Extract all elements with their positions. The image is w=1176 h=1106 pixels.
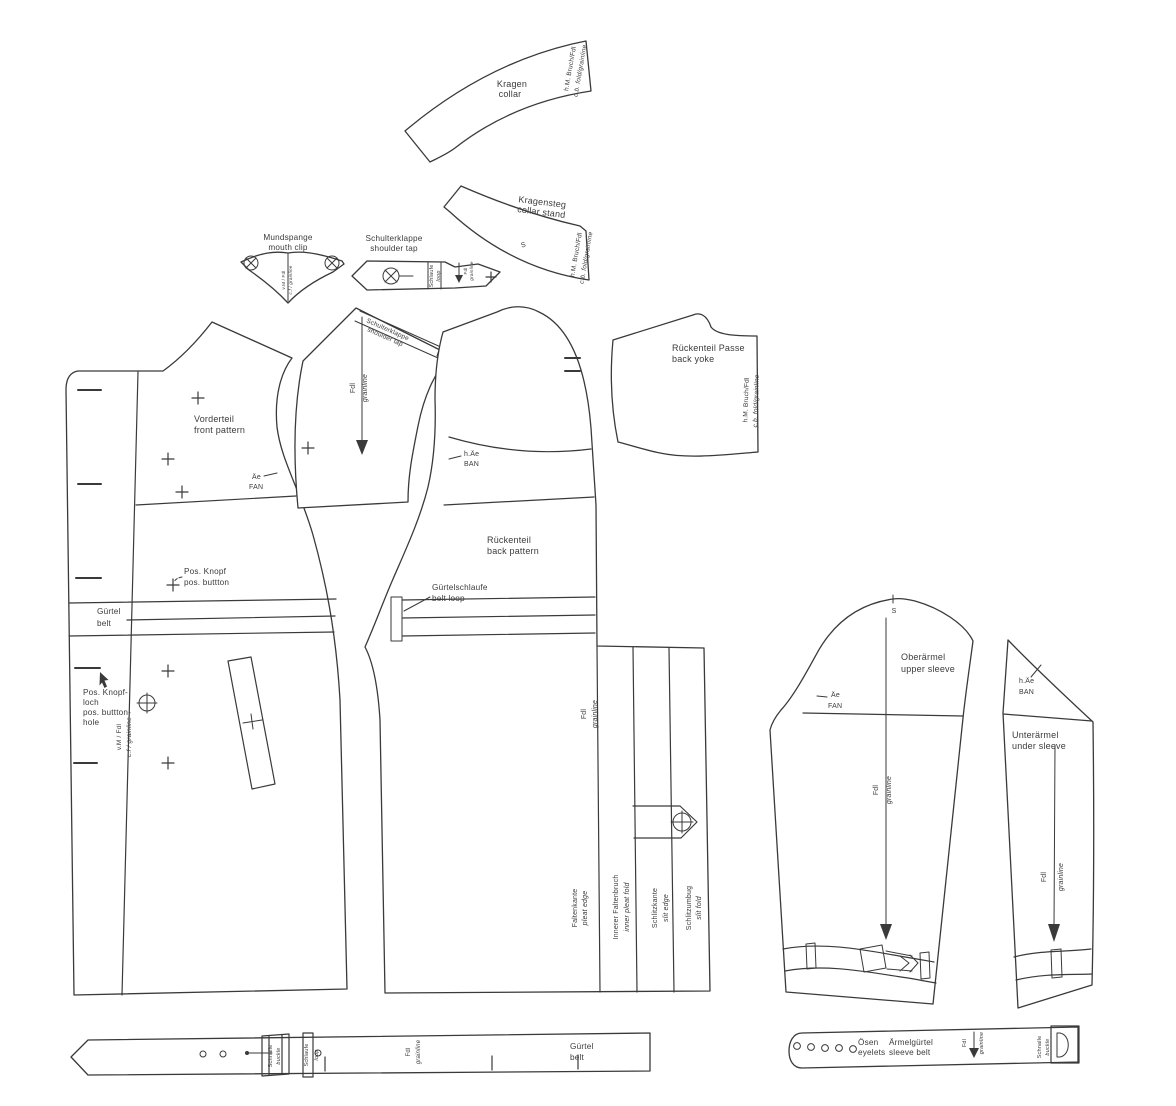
sleeve-belt-label-de: Ärmelgürtel <box>889 1037 933 1047</box>
under-sleeve-piece: Fdl grainline h.Äe BAN Unterärmel under … <box>1003 640 1094 1008</box>
collar-label-en: collar <box>499 89 522 99</box>
back-yoke-fold-grainline-en: c.b. fold/grainline <box>752 374 761 427</box>
waist-belt-buckle-de: Schnalle <box>268 1045 274 1068</box>
belt-loop-label-de: Gürtelschlaufe <box>432 583 488 592</box>
under-sleeve-label-en: under sleeve <box>1012 741 1066 751</box>
upper-sleeve-piece: Fdl grainline S Oberärmel upper sleeve Ä… <box>770 595 973 1004</box>
belt-loop-label-en: belt loop <box>432 594 465 603</box>
back-ban-en: BAN <box>464 461 479 468</box>
front-cf-de: v.M / Fdl <box>116 724 123 751</box>
slit-fold-de: Schlitzumbug <box>686 886 693 930</box>
back-label-en: back pattern <box>487 546 539 556</box>
inner-pleat-fold-en: inner pleat fold <box>624 882 631 932</box>
under-sleeve-ban-de: h.Äe <box>1019 677 1034 685</box>
front-shoulder-grainline-en: grainline <box>362 374 369 402</box>
front-label-en: front pattern <box>194 425 245 435</box>
sewing-pattern-sheet: Kragen collar h.M. Bruch/Fdl c.b. fold/g… <box>0 0 1176 1106</box>
upper-sleeve-notch-s: S <box>892 608 897 615</box>
mouth-clip-label-de: Mundspange <box>263 233 313 242</box>
upper-sleeve-grainline-de: Fdl <box>873 785 880 796</box>
back-grainline-en: grainline <box>592 700 599 728</box>
collar-label-de: Kragen <box>497 79 527 89</box>
mouth-clip-label-en: mouth clip <box>268 243 308 252</box>
eyelets-label-en: eyelets <box>858 1048 885 1057</box>
upper-sleeve-fan-de: Äe <box>831 691 840 699</box>
waist-belt-loop-de: Schlaufe <box>304 1043 310 1066</box>
under-sleeve-ban-en: BAN <box>1019 689 1034 696</box>
upper-sleeve-label-en: upper sleeve <box>901 664 955 674</box>
pos-button-de: Pos. Knopf <box>184 567 227 576</box>
back-yoke-label-en: back yoke <box>672 354 714 364</box>
slit-fold-en: slit fold <box>696 895 703 919</box>
sleeve-belt-outline <box>789 1027 1078 1068</box>
front-shoulder-outline <box>295 308 450 508</box>
shoulder-tab-loop-de: Schlaufe <box>429 264 435 287</box>
pos-buttonhole-en1: pos. buttton- <box>83 708 131 717</box>
upper-sleeve-grainline-en: grainline <box>886 776 893 804</box>
slit-edge-de: Schlitzkante <box>652 888 659 928</box>
waist-belt-grainline-en: grainline <box>416 1039 422 1064</box>
pos-buttonhole-en2: hole <box>83 718 100 727</box>
sleeve-belt-grainline-en: grainline <box>979 1032 985 1055</box>
front-fan-de: Äe <box>252 473 261 481</box>
shoulder-tab-outline <box>352 261 500 290</box>
under-sleeve-outline <box>1003 640 1094 1008</box>
back-ban-de: h.Äe <box>464 450 479 458</box>
front-belt-label-de: Gürtel <box>97 607 121 616</box>
pos-button-en: pos. buttton <box>184 578 229 587</box>
inner-pleat-fold-de: Innerer Faltenbruch <box>613 875 620 940</box>
under-sleeve-label-de: Unterärmel <box>1012 730 1059 740</box>
sleeve-belt-piece: Ösen eyelets Ärmelgürtel sleeve belt Fdl… <box>789 1026 1079 1068</box>
waist-belt-label-de: Gürtel <box>570 1042 594 1051</box>
pleat-edge-de: Faltenkante <box>572 889 579 928</box>
waist-belt-outline <box>71 1033 650 1075</box>
mouth-clip-piece: Mundspange mouth clip v.M / Fdl c.f / gr… <box>241 233 344 303</box>
shoulder-tab-loop-en: loop <box>436 270 442 281</box>
back-yoke-outline <box>611 314 758 456</box>
shoulder-tab-grainline-en: grainline <box>469 261 474 280</box>
sleeve-belt-grainline-de: Fdl <box>962 1039 968 1047</box>
upper-sleeve-label-de: Oberärmel <box>901 652 945 662</box>
mouth-clip-cf-en: c.f / grainline <box>288 265 293 294</box>
front-belt-label-en: belt <box>97 619 112 628</box>
back-yoke-label-de: Rückenteil Passe <box>672 343 745 353</box>
pattern-drawing: Kragen collar h.M. Bruch/Fdl c.b. fold/g… <box>0 0 1176 1106</box>
waist-belt-loop-en: loop <box>314 1049 320 1060</box>
front-shoulder-grainline-de: Fdl <box>350 383 357 394</box>
under-sleeve-grainline-de: Fdl <box>1041 872 1048 883</box>
upper-sleeve-fan-en: FAN <box>828 703 842 710</box>
waist-belt-buckle-en: buckle <box>276 1047 282 1064</box>
back-grainline-de: Fdl <box>581 709 588 720</box>
sleeve-belt-buckle-de: Schnalle <box>1037 1036 1043 1059</box>
back-label-de: Rückenteil <box>487 535 531 545</box>
under-sleeve-grainline-en: grainline <box>1058 863 1065 891</box>
pos-buttonhole-de1: Pos. Knopf- <box>83 688 128 697</box>
front-cf-en: c.f / grainline <box>126 717 133 757</box>
slit-edge-en: slit edge <box>663 894 670 922</box>
belt-loop-outline <box>391 597 402 641</box>
pleat-edge-en: pleat edge <box>582 891 589 927</box>
sleeve-belt-label-en: sleeve belt <box>889 1048 931 1057</box>
front-fan-en: FAN <box>249 484 263 491</box>
waist-belt-grainline-de: Fdl <box>406 1048 412 1057</box>
back-yoke-piece: Rückenteil Passe back yoke h.M. Bruch/Fd… <box>611 314 761 456</box>
shoulder-tab-piece: Schulterklappe shoulder tap Schlaufe loo… <box>352 234 500 290</box>
pos-buttonhole-de2: loch <box>83 698 99 707</box>
eyelets-label-de: Ösen <box>858 1037 879 1047</box>
waist-belt-label-en: belt <box>570 1053 585 1062</box>
mouth-clip-cf-de: v.M / Fdl <box>281 270 286 289</box>
sleeve-belt-buckle-en: buckle <box>1045 1038 1051 1055</box>
shoulder-tab-label-de: Schulterklappe <box>366 234 423 243</box>
collar-piece: Kragen collar h.M. Bruch/Fdl c.b. fold/g… <box>405 41 591 162</box>
waist-belt-piece: Schnalle buckle Schlaufe loop Fdl grainl… <box>71 1033 650 1077</box>
front-label-de: Vorderteil <box>194 414 234 424</box>
shoulder-tab-label-en: shoulder tap <box>370 244 418 253</box>
shoulder-tab-grainline-de: Fdl <box>463 268 468 275</box>
collar-outline <box>405 41 591 162</box>
